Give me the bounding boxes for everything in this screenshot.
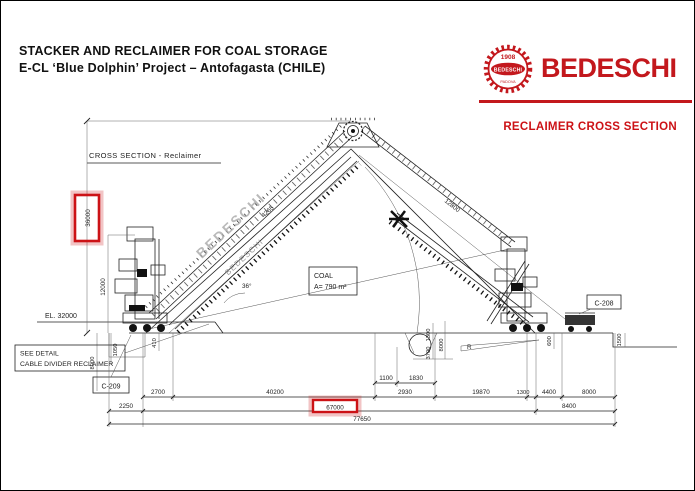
title-line-1: STACKER AND RECLAIMER FOR COAL STORAGE <box>19 43 328 60</box>
dim-row-4: 77650 <box>107 416 617 426</box>
dim-67000: 67000 <box>326 405 344 412</box>
dim-row-3: 2250 67000 8400 <box>107 398 617 414</box>
chain-tensioner <box>389 211 409 227</box>
logo-year: 1908 <box>501 54 516 61</box>
dim-19870: 19870 <box>472 389 490 396</box>
dim-40200: 40200 <box>266 389 284 396</box>
dim-1830: 1830 <box>409 375 424 382</box>
dim-12000: 12000 <box>100 235 135 333</box>
header-rule <box>479 100 692 103</box>
dim-2700: 2700 <box>151 389 166 396</box>
extension-lines <box>109 333 615 427</box>
dim-8000-h: 8000 <box>582 389 597 396</box>
coal-area-box: COAL A= 790 m² <box>309 267 357 295</box>
dim-1050: 1050 <box>113 344 119 357</box>
svg-text:CABLE DIVIDER RECLAIMER: CABLE DIVIDER RECLAIMER <box>20 361 113 368</box>
dim-2930: 2930 <box>398 389 413 396</box>
dim-3700: 3700 <box>426 347 432 360</box>
logo-oval-text: BEDESCHI <box>494 67 523 73</box>
bedeschi-emblem: 1908 BEDESCHI PADOVA <box>480 41 536 97</box>
center-dims: 1300 3700 8000 R <box>413 321 539 359</box>
svg-text:C-209: C-209 <box>101 384 120 391</box>
right-reclaimer-machine <box>487 237 547 332</box>
dim-2250: 2250 <box>119 403 134 410</box>
title-line-2: E-CL ‘Blue Dolphin’ Project – Antofagast… <box>19 60 328 77</box>
slide: STACKER AND RECLAIMER FOR COAL STORAGE E… <box>0 0 695 491</box>
dim-600: 600 <box>547 336 553 346</box>
drawing-caption: CROSS SECTION - Reclaimer <box>89 151 202 160</box>
dim-1300-h: 1300 <box>517 390 530 396</box>
svg-text:36000: 36000 <box>85 209 92 227</box>
svg-text:12000: 12000 <box>100 278 107 296</box>
svg-text:COAL: COAL <box>314 273 333 280</box>
dim-410: 410 <box>152 338 158 348</box>
svg-text:SEE DETAIL: SEE DETAIL <box>20 351 59 358</box>
dim-1300-v: 1300 <box>426 329 432 342</box>
see-detail-box: SEE DETAIL CABLE DIVIDER RECLAIMER <box>15 324 209 371</box>
c208-machine <box>565 313 595 332</box>
bedeschi-wordmark: BEDESCHI <box>541 53 677 84</box>
right-scraper-boom <box>389 211 533 326</box>
svg-text:C-208: C-208 <box>594 301 613 308</box>
boom-dim-4265: 4265 <box>260 204 275 219</box>
dim-row-1: 1100 1830 <box>373 375 437 385</box>
dim-1100: 1100 <box>379 375 393 382</box>
angle-label: 36° <box>242 282 252 290</box>
c208-box: C-208 <box>579 295 621 314</box>
cross-section-drawing: CROSS SECTION - Reclaimer <box>9 107 689 469</box>
right-boom: 12800 <box>361 126 515 247</box>
dim-row-2: 2700 40200 2930 19870 1300 4400 8000 <box>141 389 617 399</box>
svg-text:A= 790 m²: A= 790 m² <box>314 284 347 291</box>
boom-dim-right: 12800 <box>443 198 462 215</box>
slide-title: STACKER AND RECLAIMER FOR COAL STORAGE E… <box>19 43 328 77</box>
dim-8000-mid: 8000 <box>439 339 445 352</box>
dim-4400: 4400 <box>542 389 557 396</box>
dim-8400: 8400 <box>562 403 577 410</box>
elevation-label: EL. 32000 <box>45 313 77 320</box>
logo-city: PADOVA <box>500 80 516 84</box>
dim-77650: 77650 <box>353 416 371 423</box>
gear-icon: 1908 BEDESCHI PADOVA <box>486 47 530 91</box>
dim-1500: 1500 <box>617 334 623 347</box>
